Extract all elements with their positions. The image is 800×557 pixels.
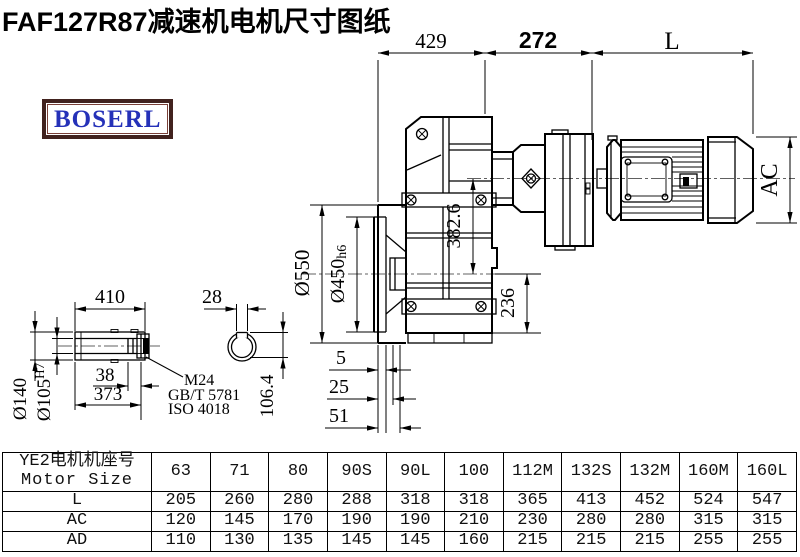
value-cell: 365: [503, 492, 562, 512]
value-cell: 255: [738, 532, 797, 552]
dim-236: 236: [497, 288, 519, 318]
value-cell: 318: [445, 492, 504, 512]
value-cell: 145: [386, 532, 445, 552]
value-cell: 413: [562, 492, 621, 512]
dim-410: 410: [95, 286, 125, 308]
size-column-header: 80: [269, 453, 328, 492]
size-column-header: 90S: [327, 453, 386, 492]
row-label: AD: [3, 532, 152, 552]
value-cell: 524: [679, 492, 738, 512]
motor-size-header-cell: YE2电机机座号 Motor Size: [3, 453, 152, 492]
size-column-header: 71: [210, 453, 269, 492]
hollow-shaft-detail: [75, 330, 183, 378]
value-cell: 130: [210, 532, 269, 552]
value-cell: 160: [445, 532, 504, 552]
fan-cowl: [703, 137, 753, 223]
size-column-header: 100: [445, 453, 504, 492]
value-cell: 288: [327, 492, 386, 512]
dim-25: 25: [329, 376, 349, 398]
adapter-section: [492, 130, 607, 250]
table-row-L: L 205 260 280 288 318 318 365 413 452 52…: [3, 492, 797, 512]
dim-550: Ø550: [290, 250, 314, 297]
dim-51: 51: [329, 405, 349, 427]
row-label: AC: [3, 512, 152, 532]
value-cell: 315: [679, 512, 738, 532]
value-cell: 280: [562, 512, 621, 532]
value-cell: 215: [562, 532, 621, 552]
value-cell: 205: [152, 492, 211, 512]
dim-106-4: 106.4: [257, 374, 278, 417]
size-column-header: 132S: [562, 453, 621, 492]
row-label: L: [3, 492, 152, 512]
value-cell: 315: [738, 512, 797, 532]
page-title: FAF127R87减速机电机尺寸图纸: [2, 0, 391, 39]
dim-429: 429: [415, 29, 447, 53]
value-cell: 215: [503, 532, 562, 552]
label-bolt-std2: ISO 4018: [168, 401, 230, 418]
size-column-header: 132M: [621, 453, 680, 492]
dim-382-6: 382.6: [443, 204, 465, 249]
value-cell: 170: [269, 512, 328, 532]
value-cell: 280: [269, 492, 328, 512]
value-cell: 110: [152, 532, 211, 552]
value-cell: 260: [210, 492, 269, 512]
value-cell: 190: [386, 512, 445, 532]
dim-5: 5: [336, 347, 346, 369]
technical-drawing: 429 272 L AC 382.6 236 Ø550 Ø450h6 5 25 …: [0, 0, 800, 452]
value-cell: 190: [327, 512, 386, 532]
dim-L: L: [664, 28, 679, 55]
header-cn: YE2电机机座号: [3, 453, 151, 472]
value-cell: 230: [503, 512, 562, 532]
brand-logo-text: BOSERL: [54, 107, 161, 132]
stator-panel: [621, 157, 672, 202]
dim-450h6: Ø450h6: [327, 245, 350, 303]
table-row-AC: AC 120 145 170 190 190 210 230 280 280 3…: [3, 512, 797, 532]
shaft-cross-section: [228, 332, 256, 361]
dimension-labels: 429 272 L AC 382.6 236 Ø550 Ø450h6 5 25 …: [10, 27, 783, 427]
value-cell: 280: [621, 512, 680, 532]
dim-28: 28: [202, 286, 222, 308]
value-cell: 215: [621, 532, 680, 552]
value-cell: 145: [327, 532, 386, 552]
dim-272: 272: [519, 27, 557, 53]
value-cell: 145: [210, 512, 269, 532]
size-column-header: 63: [152, 453, 211, 492]
value-cell: 255: [679, 532, 738, 552]
dim-38: 38: [96, 365, 115, 386]
dim-140: Ø140: [10, 378, 31, 420]
motor: [607, 136, 753, 223]
dim-373: 373: [94, 384, 123, 405]
value-cell: 120: [152, 512, 211, 532]
value-cell: 318: [386, 492, 445, 512]
value-cell: 452: [621, 492, 680, 512]
size-column-header: 112M: [503, 453, 562, 492]
value-cell: 135: [269, 532, 328, 552]
value-cell: 547: [738, 492, 797, 512]
dim-105H7: Ø105H7: [32, 362, 55, 421]
centerlines: [58, 179, 795, 347]
size-column-header: 160M: [679, 453, 738, 492]
value-cell: 210: [445, 512, 504, 532]
size-column-header: 160L: [738, 453, 797, 492]
dim-AC: AC: [757, 163, 783, 196]
table-row-AD: AD 110 130 135 145 145 160 215 215 215 2…: [3, 532, 797, 552]
header-en: Motor Size: [3, 472, 151, 491]
table-header-row: YE2电机机座号 Motor Size 63 71 80 90S 90L 100…: [3, 453, 797, 492]
motor-size-table: YE2电机机座号 Motor Size 63 71 80 90S 90L 100…: [2, 452, 797, 552]
brand-logo: BOSERL: [42, 99, 173, 139]
motor-flange: [607, 140, 621, 220]
size-column-header: 90L: [386, 453, 445, 492]
